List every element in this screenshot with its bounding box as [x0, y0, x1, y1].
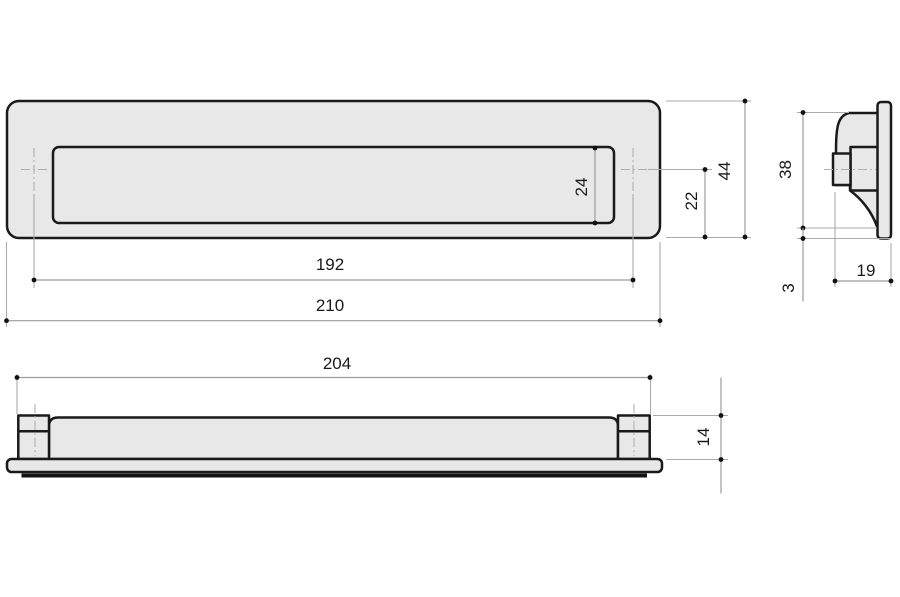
- front-view: 192 210 24 22 44: [4, 99, 751, 327]
- dimension-label: 192: [316, 255, 344, 274]
- dimension-endpoint: [743, 235, 748, 240]
- dimension-endpoint: [719, 457, 724, 462]
- dimension-label: 204: [323, 354, 351, 373]
- flap-side-outline: [851, 147, 879, 191]
- flap-front-outline: [53, 147, 614, 223]
- dimension-210: 210: [4, 296, 662, 323]
- faceplate-edge-outline: [7, 459, 662, 472]
- dimension-endpoint: [15, 375, 20, 380]
- dimension-label: 14: [694, 428, 713, 447]
- dimension-endpoint: [801, 236, 806, 241]
- dimension-endpoint: [593, 221, 598, 226]
- dimension-endpoint: [4, 318, 9, 323]
- dimension-label: 44: [715, 162, 734, 181]
- dimension-endpoint: [889, 279, 894, 284]
- dimension-19: 19: [833, 261, 894, 283]
- dimension-endpoint: [719, 413, 724, 418]
- dimension-endpoint: [703, 235, 708, 240]
- dimension-endpoint: [801, 110, 806, 115]
- faceplate-side-outline: [878, 102, 892, 239]
- dimension-204: 204: [15, 354, 653, 380]
- dimension-endpoint: [743, 99, 748, 104]
- dimension-label: 19: [857, 261, 876, 280]
- dimension-endpoint: [833, 279, 838, 284]
- dimension-label: 3: [779, 283, 798, 292]
- dimension-label: 38: [776, 160, 795, 179]
- dimension-endpoint: [703, 167, 708, 172]
- dimension-38: 38: [776, 110, 805, 230]
- dimension-endpoint: [593, 146, 598, 151]
- dimension-endpoint: [658, 318, 663, 323]
- hinge-lug-left-outline: [18, 416, 49, 460]
- body-bottom-outline: [49, 418, 618, 460]
- dimension-label: 22: [682, 192, 701, 211]
- dimension-endpoint: [631, 278, 636, 283]
- drawing-svg: 192 210 24 22 44: [0, 0, 900, 597]
- dimension-label: 210: [316, 296, 344, 315]
- side-view: 38 3 19: [776, 102, 893, 302]
- dimension-14: 14: [694, 378, 723, 494]
- dimension-44: 44: [715, 99, 747, 240]
- dimension-3: 3: [779, 228, 805, 302]
- dimension-label: 24: [572, 178, 591, 197]
- dimension-192: 192: [32, 255, 636, 282]
- dimension-22: 22: [682, 167, 707, 239]
- bottom-view: 204 14: [7, 354, 728, 494]
- dimension-endpoint: [648, 375, 653, 380]
- technical-drawing-page: 192 210 24 22 44: [0, 0, 900, 597]
- dimension-endpoint: [32, 278, 37, 283]
